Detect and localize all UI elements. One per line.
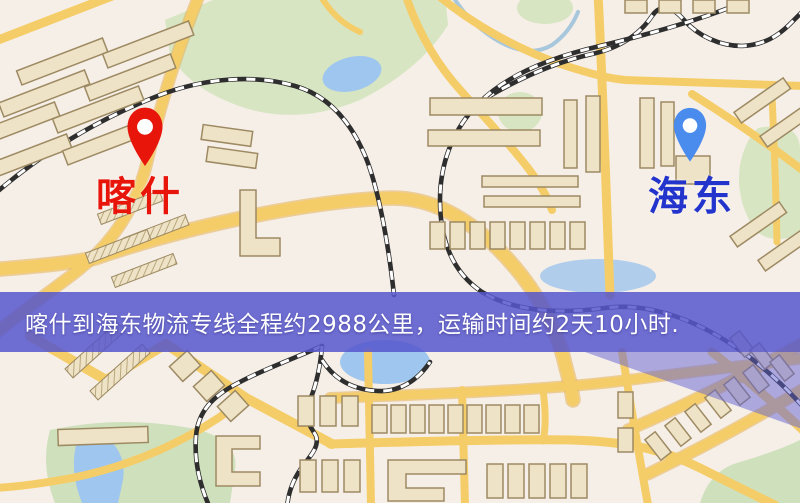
map-background	[0, 0, 800, 503]
route-info-text: 喀什到海东物流专线全程约2988公里，运输时间约2天10小时.	[25, 305, 679, 339]
route-info-banner: 喀什到海东物流专线全程约2988公里，运输时间约2天10小时.	[0, 292, 800, 352]
map-screenshot: 喀什 海东 喀什到海东物流专线全程约2988公里，运输时间约2天10小时.	[0, 0, 800, 503]
destination-city-label: 海东	[632, 175, 752, 219]
origin-city-label: 喀什	[80, 175, 200, 219]
origin-marker-icon[interactable]	[120, 100, 170, 172]
destination-marker-icon[interactable]	[667, 101, 713, 167]
